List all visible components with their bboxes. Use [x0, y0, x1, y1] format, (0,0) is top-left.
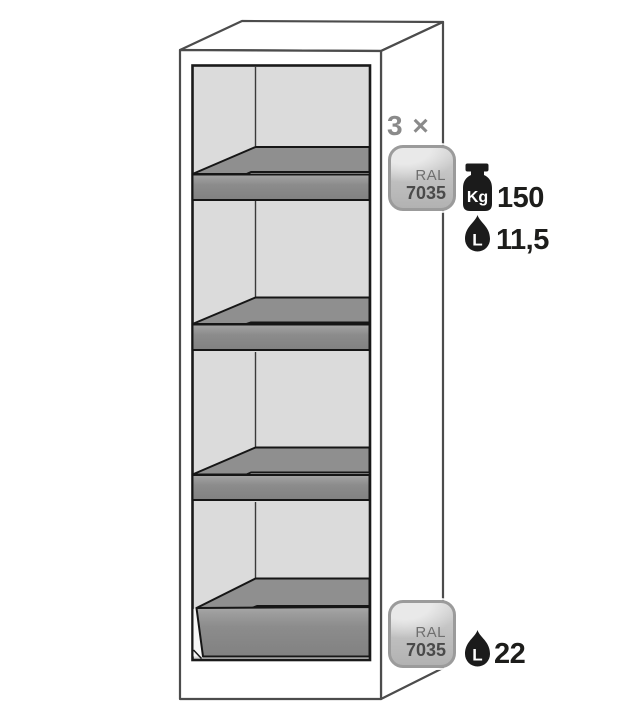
ral-code-label: 7035	[406, 184, 446, 203]
volume-unit-label: L	[472, 646, 482, 665]
ral-series-label: RAL	[415, 168, 446, 184]
sump-volume-value: 22	[494, 640, 525, 669]
drop-icon-sump: L	[464, 628, 491, 668]
weight-unit-label: Kg	[467, 189, 488, 206]
ral-series-label: RAL	[415, 625, 446, 641]
shelf-volume-value: 11,5	[496, 226, 549, 255]
shelf-count-label: 3 ×	[387, 112, 430, 140]
drop-icon-shelf: L	[464, 213, 491, 253]
weight-icon: Kg	[461, 162, 494, 213]
cabinet-illustration	[0, 0, 629, 718]
ral-7035-swatch-sump: RAL 7035	[388, 600, 456, 668]
ral-code-label: 7035	[406, 641, 446, 660]
ral-7035-swatch-shelf: RAL 7035	[388, 145, 456, 211]
cabinet-diagram: 3 × RAL 7035 Kg 150 L 11,5 RAL 7035 L 22	[0, 0, 629, 718]
volume-unit-label: L	[472, 231, 482, 250]
shelf-load-value: 150	[497, 184, 544, 213]
